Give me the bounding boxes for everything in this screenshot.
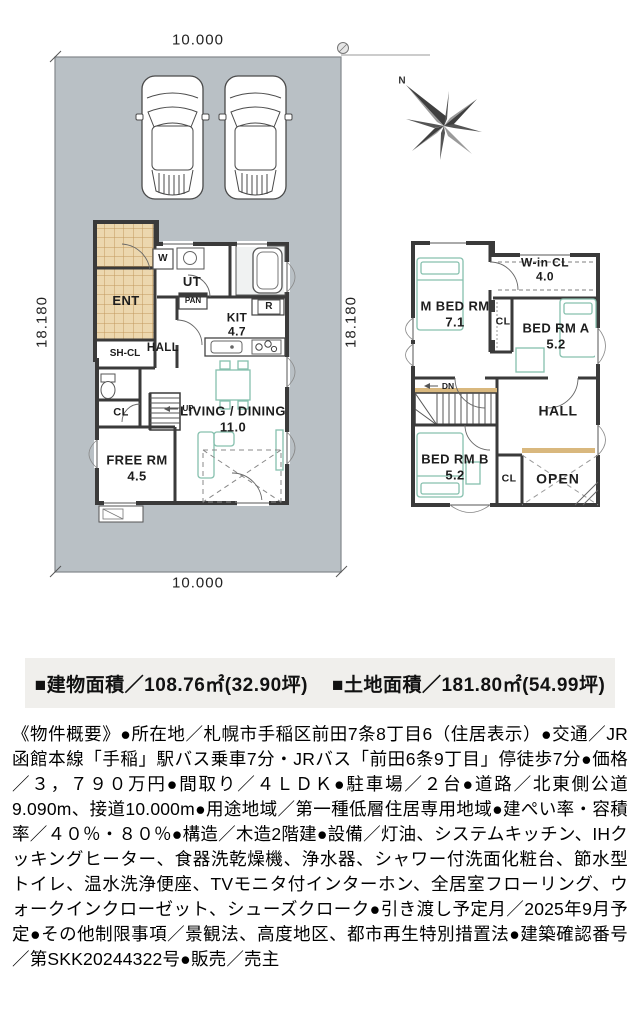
bedroom-b-size: 5.2 [421, 467, 488, 483]
kitchen-size: 4.7 [227, 325, 248, 339]
property-overview-text: 《物件概要》●所在地／札幌市手稲区前田7条8丁目6（住居表示）●交通／JR函館本… [12, 722, 628, 972]
room-label-closet-b: CL [502, 473, 517, 486]
car-icon [136, 76, 209, 199]
bedroom-a-size: 5.2 [523, 336, 590, 352]
room-label-bedroom-b: BED RM B 5.2 [421, 451, 488, 482]
room-label-closet-a: CL [496, 316, 511, 329]
room-label-living-dining: LIVING / DINING 11.0 [180, 403, 286, 434]
floor-plan-area: 10.000 10.000 18.180 18.180 N ENT W UT P… [0, 0, 640, 645]
room-label-washer: W [158, 253, 168, 265]
dimension-bottom: 10.000 [172, 575, 224, 592]
room-label-hall-2f: HALL [539, 403, 578, 420]
living-name: LIVING / DINING [180, 403, 286, 419]
room-label-closet-1f: CL [113, 406, 128, 419]
dimension-top: 10.000 [172, 32, 224, 49]
land-area-text: ■土地面積／181.80㎡(54.99坪) [332, 670, 605, 697]
building-area-text: ■建物面積／108.76㎡(32.90坪) [35, 670, 308, 697]
room-label-kitchen: KIT 4.7 [227, 311, 248, 340]
area-summary-banner: ■建物面積／108.76㎡(32.90坪) ■土地面積／181.80㎡(54.9… [25, 658, 615, 708]
living-size: 11.0 [180, 419, 286, 435]
free-room-size: 4.5 [106, 468, 167, 484]
room-label-walkin-closet: W-in CL 4.0 [521, 256, 569, 285]
car-icon [219, 76, 292, 199]
room-label-free-room: FREE RM 4.5 [106, 452, 167, 483]
room-label-pantry: PAN [185, 296, 201, 306]
dimension-left: 18.180 [34, 296, 51, 348]
room-label-entrance: ENT [112, 293, 139, 309]
room-label-refrigerator: R [265, 301, 273, 313]
compass-north-label: N [398, 76, 405, 87]
walkin-closet-size: 4.0 [521, 270, 569, 284]
bedroom-a-name: BED RM A [523, 320, 590, 336]
free-room-name: FREE RM [106, 452, 167, 468]
bedroom-b-name: BED RM B [421, 451, 488, 467]
room-label-shoe-closet: SH-CL [110, 348, 141, 360]
compass-icon [406, 85, 482, 160]
stairs-down-label: DN [442, 381, 454, 391]
walkin-closet-name: W-in CL [521, 256, 569, 270]
master-bedroom-size: 7.1 [421, 314, 490, 330]
kitchen-name: KIT [227, 311, 248, 325]
room-label-master-bedroom: M BED RM 7.1 [421, 298, 490, 329]
room-label-hall-1f: HALL [147, 342, 179, 356]
room-label-open-void: OPEN [536, 471, 580, 488]
room-label-utility: UT [183, 274, 201, 290]
room-label-bedroom-a: BED RM A 5.2 [523, 320, 590, 351]
real-estate-flyer: 10.000 10.000 18.180 18.180 N ENT W UT P… [0, 0, 640, 1016]
property-overview: 《物件概要》●所在地／札幌市手稲区前田7条8丁目6（住居表示）●交通／JR函館本… [12, 722, 628, 972]
dimension-right: 18.180 [343, 296, 360, 348]
master-bedroom-name: M BED RM [421, 298, 490, 314]
